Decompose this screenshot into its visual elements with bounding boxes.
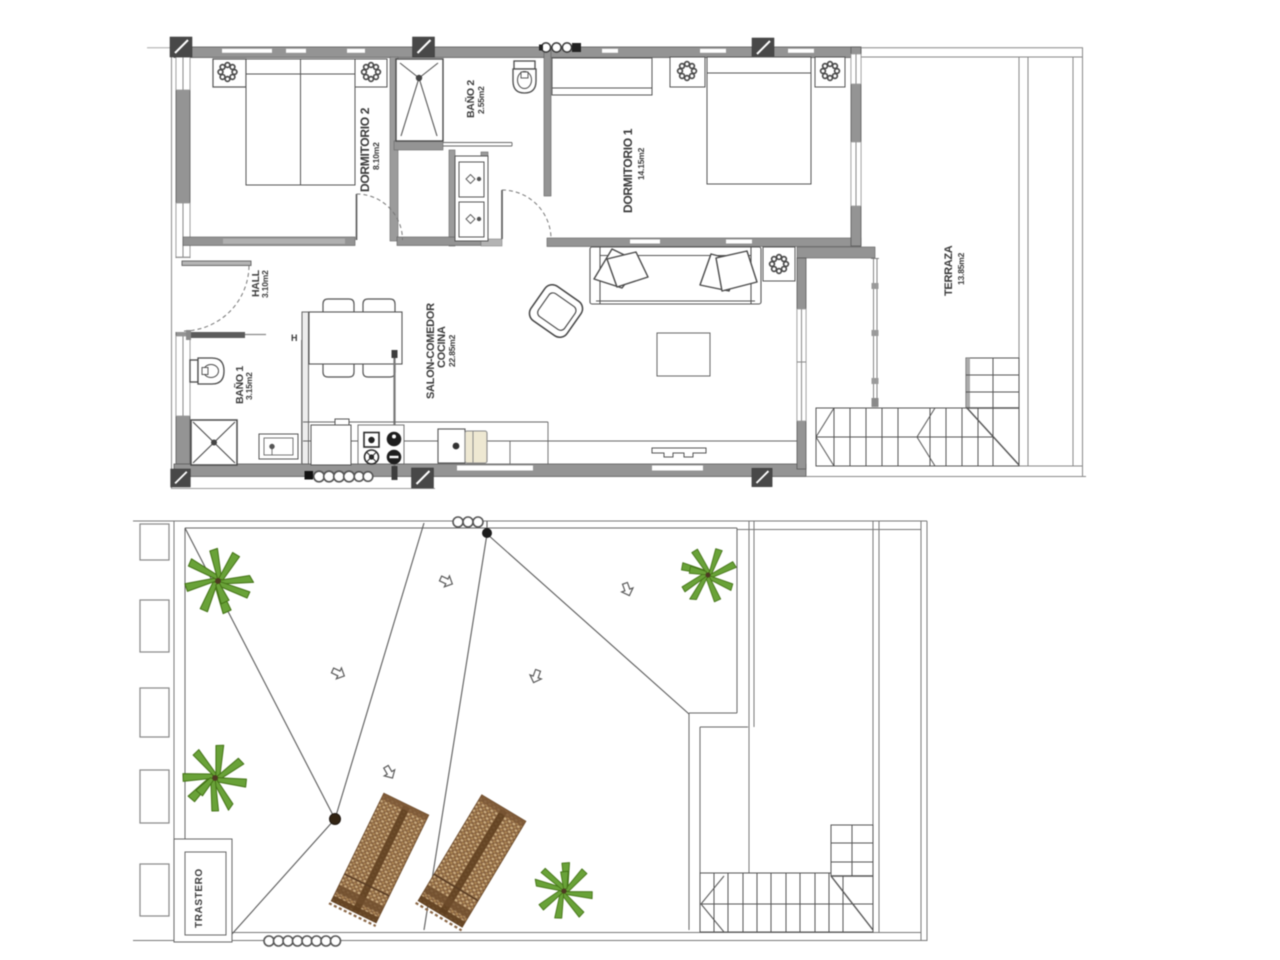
svg-text:13.85m2: 13.85m2 [956,252,966,285]
svg-text:14.15m2: 14.15m2 [636,147,646,180]
svg-text:8.10m2: 8.10m2 [371,142,381,170]
svg-text:DORMITORIO 1: DORMITORIO 1 [621,128,635,213]
svg-text:2.55m2: 2.55m2 [476,86,486,114]
svg-text:TRASTERO: TRASTERO [194,868,205,928]
svg-text:DORMITORIO 2: DORMITORIO 2 [358,107,372,192]
svg-text:H: H [291,333,298,343]
svg-text:TERRAZA: TERRAZA [943,245,955,296]
svg-text:3.15m2: 3.15m2 [244,372,254,400]
svg-text:22.85m2: 22.85m2 [447,334,457,367]
svg-text:3.10m2: 3.10m2 [260,270,270,298]
